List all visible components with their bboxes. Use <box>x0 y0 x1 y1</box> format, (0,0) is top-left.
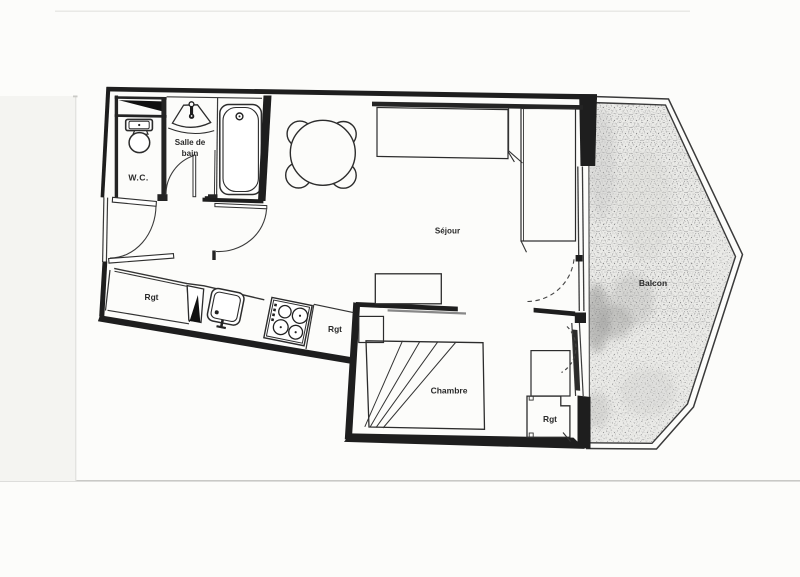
svg-text:Rgt: Rgt <box>543 414 557 424</box>
svg-text:Rgt: Rgt <box>145 292 159 302</box>
svg-text:Séjour: Séjour <box>435 227 461 236</box>
svg-text:Chambre: Chambre <box>431 386 468 396</box>
svg-text:Salle de: Salle de <box>175 138 206 147</box>
svg-text:Balcon: Balcon <box>639 278 667 288</box>
svg-text:W.C.: W.C. <box>128 173 148 183</box>
svg-text:Rgt: Rgt <box>328 324 342 334</box>
